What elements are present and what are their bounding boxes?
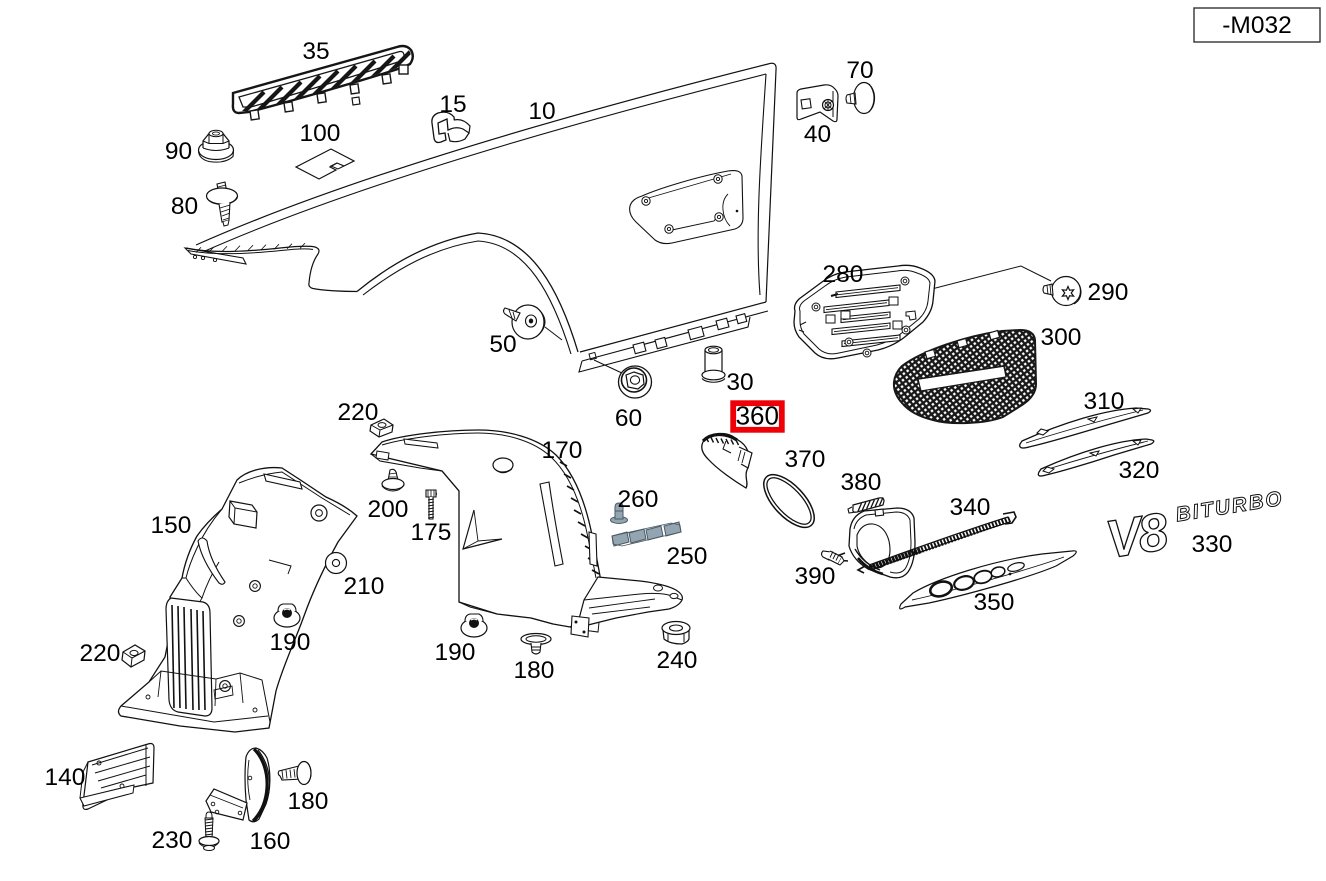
svg-text:380: 380 [841,469,882,496]
svg-text:220: 220 [80,640,121,667]
svg-text:300: 300 [1041,324,1082,351]
svg-text:350: 350 [974,589,1015,616]
svg-text:360: 360 [736,401,779,431]
svg-text:150: 150 [151,512,192,539]
svg-text:100: 100 [300,120,341,147]
svg-text:175: 175 [411,519,452,546]
svg-text:15: 15 [439,91,466,118]
svg-text:340: 340 [950,494,991,521]
svg-text:320: 320 [1119,457,1160,484]
svg-text:280: 280 [823,261,864,288]
svg-text:70: 70 [846,57,873,84]
svg-text:170: 170 [542,437,583,464]
svg-text:310: 310 [1084,388,1125,415]
svg-text:10: 10 [528,98,555,125]
svg-text:250: 250 [667,543,708,570]
svg-text:220: 220 [338,399,379,426]
svg-text:40: 40 [804,121,831,148]
svg-text:240: 240 [657,647,698,674]
svg-text:140: 140 [45,764,86,791]
svg-text:190: 190 [435,639,476,666]
svg-text:50: 50 [489,331,516,358]
svg-text:180: 180 [288,788,329,815]
svg-text:160: 160 [250,828,291,855]
svg-text:330: 330 [1192,531,1233,558]
svg-text:230: 230 [152,827,193,854]
svg-text:210: 210 [344,573,385,600]
svg-text:370: 370 [785,446,826,473]
svg-text:80: 80 [171,193,198,220]
svg-text:35: 35 [302,38,329,65]
svg-text:290: 290 [1088,279,1129,306]
svg-text:90: 90 [165,138,192,165]
svg-text:180: 180 [514,657,555,684]
svg-text:30: 30 [726,369,753,396]
svg-text:260: 260 [618,486,659,513]
svg-text:200: 200 [368,496,409,523]
svg-text:190: 190 [270,629,311,656]
svg-text:-M032: -M032 [1222,12,1291,39]
svg-text:60: 60 [615,405,642,432]
svg-text:390: 390 [795,563,836,590]
